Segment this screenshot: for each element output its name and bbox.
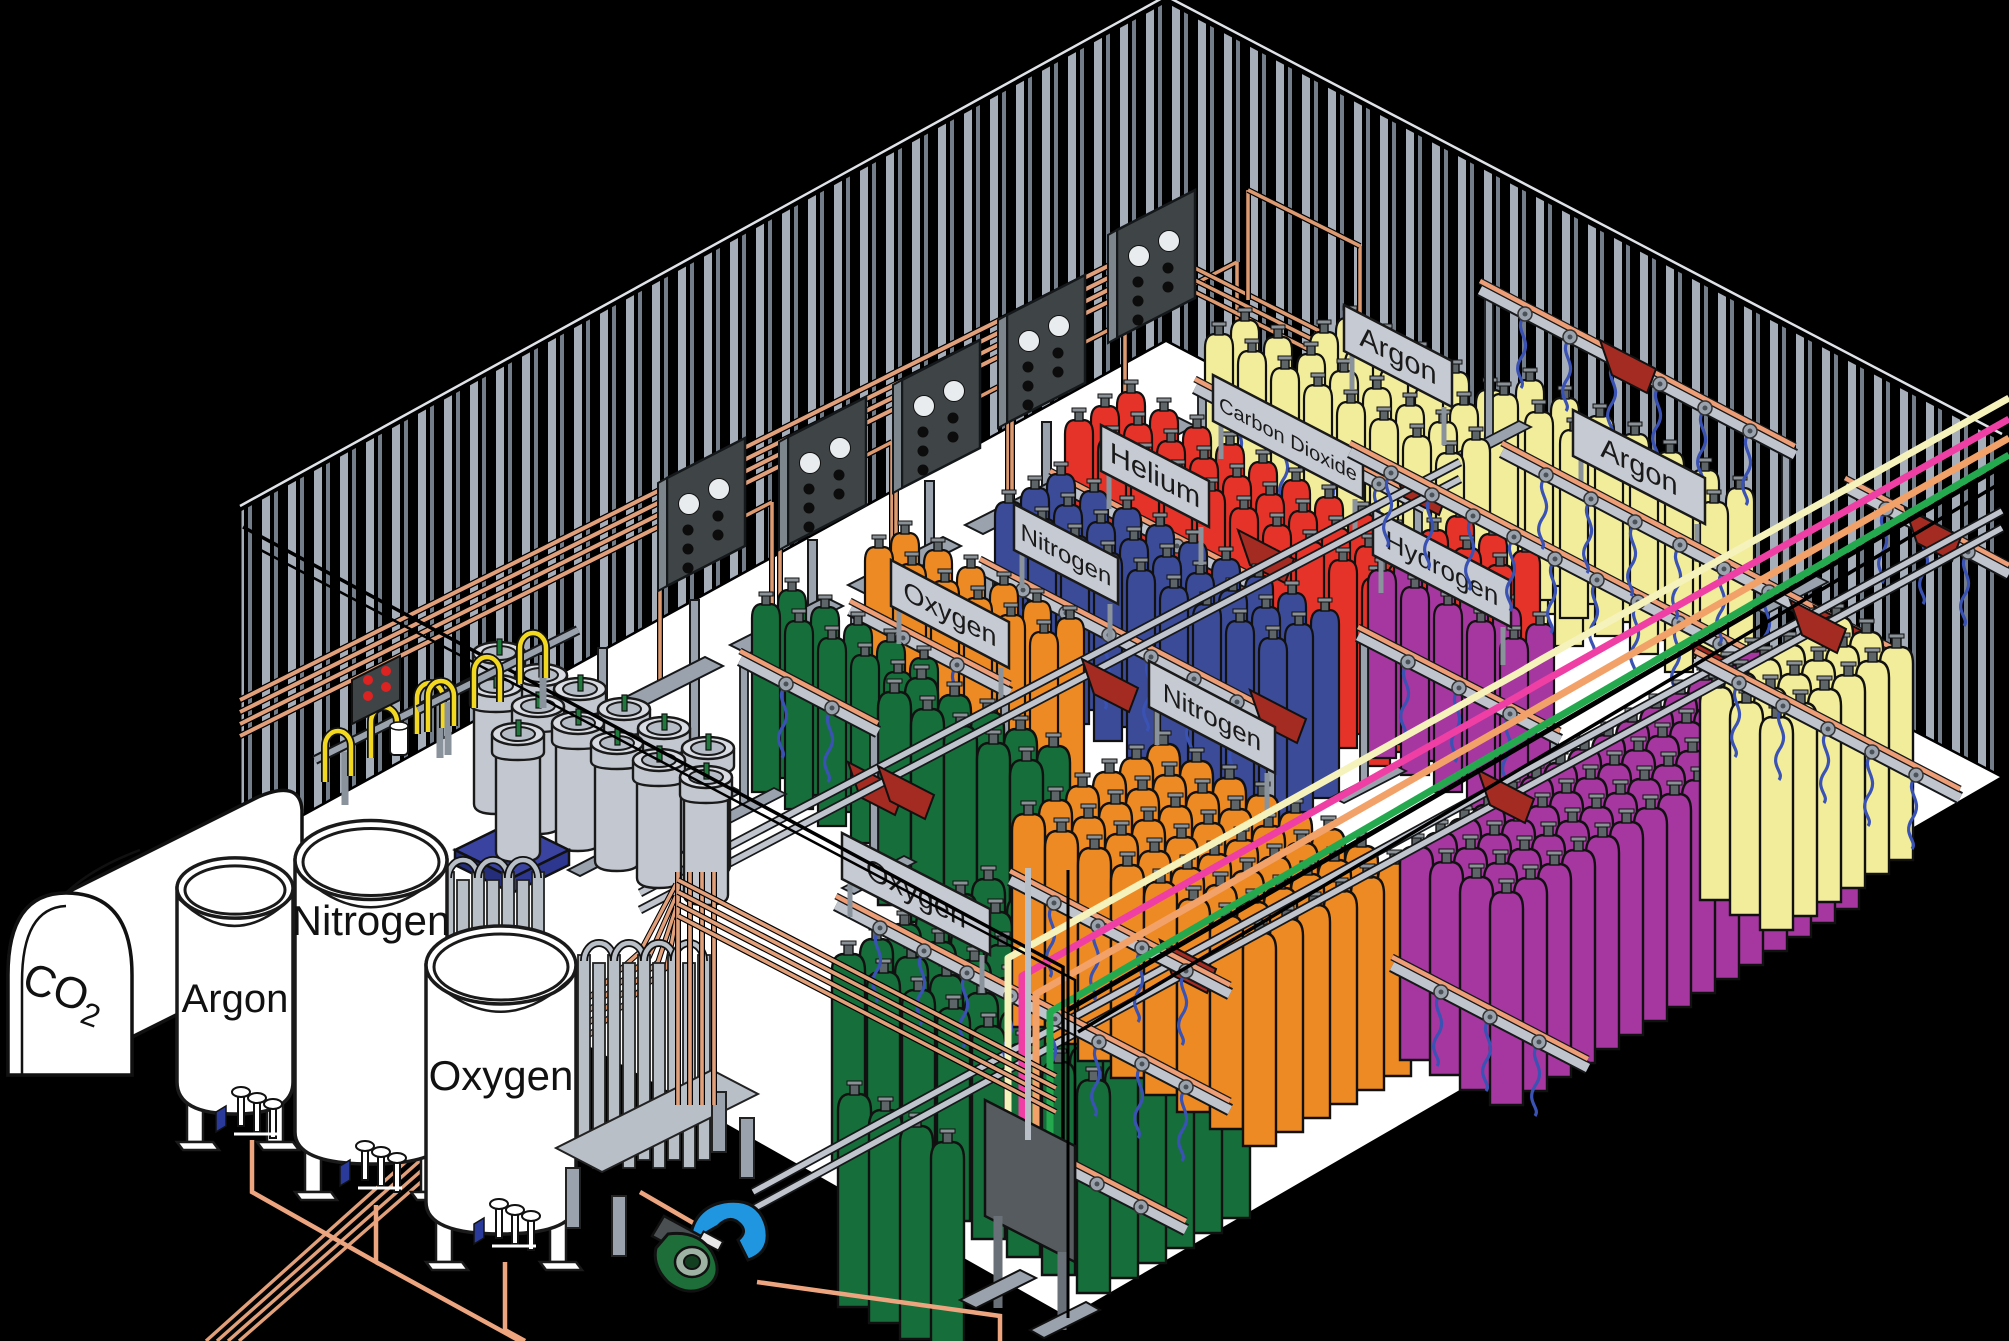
svg-text:Argon: Argon xyxy=(182,977,289,1021)
svg-text:Oxygen: Oxygen xyxy=(429,1052,574,1099)
svg-text:Nitrogen: Nitrogen xyxy=(292,897,451,944)
